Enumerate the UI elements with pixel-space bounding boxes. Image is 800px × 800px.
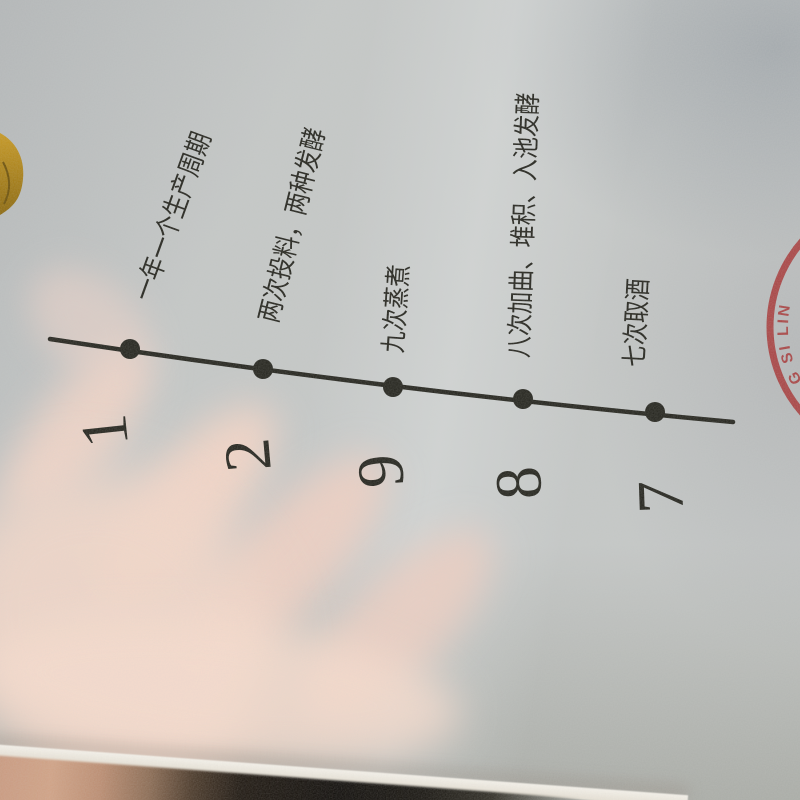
red-seal: G SI LIN bbox=[770, 197, 800, 457]
timeline-line bbox=[50, 339, 733, 422]
step-label-7: 七次取酒 bbox=[619, 278, 654, 368]
photo-of-paper: G SI LIN 1 2 9 8 7 一年一个生产周期 两次投料，两种发酵 九次… bbox=[0, 0, 800, 800]
step-number-7: 7 bbox=[624, 479, 698, 515]
timeline-dot-9 bbox=[383, 377, 403, 397]
step-label-9: 九次蒸煮 bbox=[378, 264, 415, 354]
timeline-dot-2 bbox=[253, 359, 273, 379]
seal-outer-ring bbox=[770, 197, 800, 457]
step-label-2: 两次投料，两种发酵 bbox=[254, 125, 332, 326]
timeline-dot-7 bbox=[645, 402, 665, 422]
gold-emblem-fragment bbox=[0, 133, 23, 215]
step-label-8: 八次加曲、堆积、入池发酵 bbox=[504, 92, 544, 358]
timeline-dot-8 bbox=[513, 389, 533, 409]
seal-arc-text: G SI LIN bbox=[775, 301, 800, 387]
step-label-1: 一年一个生产周期 bbox=[128, 128, 217, 305]
step-number-8: 8 bbox=[482, 465, 557, 502]
